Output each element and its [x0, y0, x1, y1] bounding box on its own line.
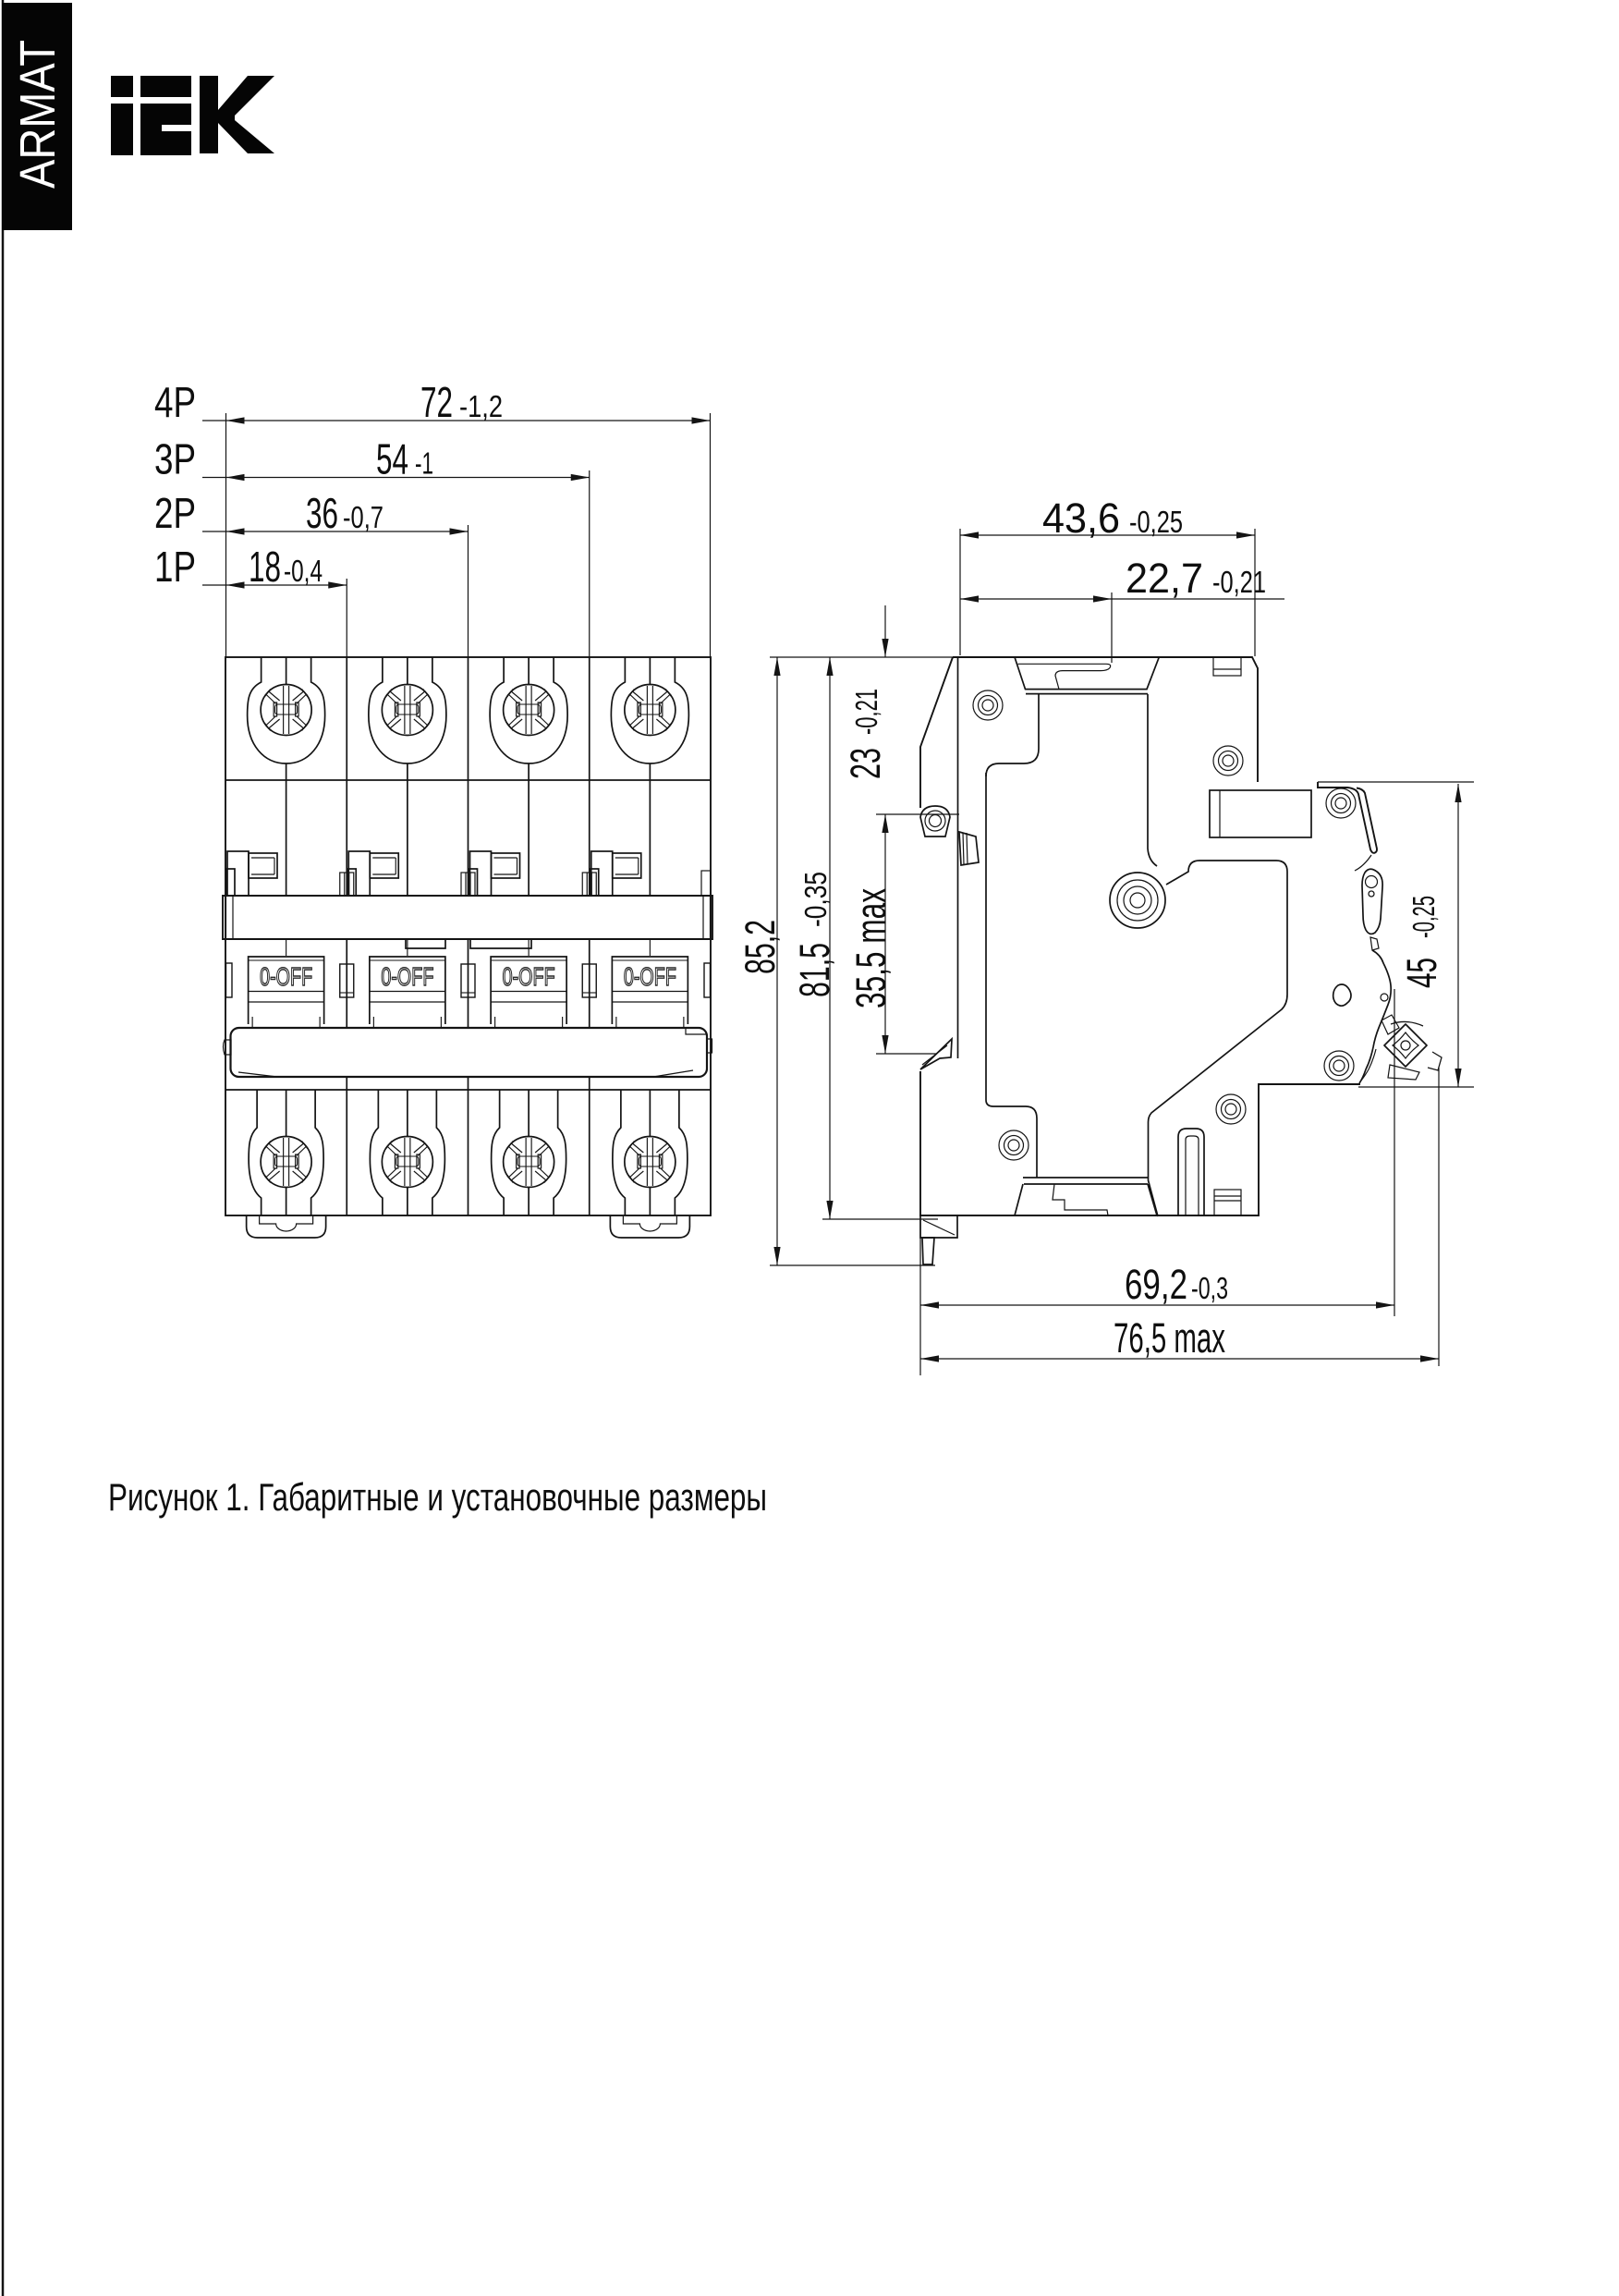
svg-text:2P: 2P: [154, 489, 196, 537]
svg-text:-0,25: -0,25: [1129, 505, 1183, 539]
svg-text:36: 36: [306, 489, 338, 537]
svg-text:45: 45: [1398, 958, 1445, 988]
svg-text:23: 23: [842, 748, 889, 779]
svg-text:-1,2: -1,2: [459, 389, 503, 423]
svg-text:3P: 3P: [154, 435, 196, 483]
svg-text:4P: 4P: [154, 378, 196, 426]
svg-text:-1: -1: [415, 446, 433, 481]
svg-text:54: 54: [376, 435, 408, 483]
svg-text:Рисунок 1. Габаритные и устано: Рисунок 1. Габаритные и установочные раз…: [108, 1475, 767, 1519]
svg-text:-0,35: -0,35: [798, 872, 833, 927]
svg-text:18: 18: [249, 543, 281, 591]
svg-text:85,2: 85,2: [736, 920, 784, 974]
svg-text:-0,25: -0,25: [1406, 896, 1441, 938]
svg-text:ARMAT: ARMAT: [10, 40, 66, 189]
svg-text:1P: 1P: [154, 543, 196, 591]
svg-text:-0,21: -0,21: [1212, 565, 1266, 599]
svg-text:76,5 max: 76,5 max: [1114, 1314, 1225, 1362]
svg-text:-0,7: -0,7: [343, 500, 383, 534]
svg-text:72: 72: [420, 378, 453, 426]
svg-text:69,2: 69,2: [1125, 1261, 1187, 1308]
svg-text:35,5 max: 35,5 max: [847, 888, 895, 1008]
svg-text:-0,3: -0,3: [1191, 1271, 1228, 1305]
svg-text:-0,4: -0,4: [284, 554, 323, 588]
svg-text:22,7: 22,7: [1126, 555, 1203, 602]
svg-text:81,5: 81,5: [791, 943, 838, 997]
svg-text:43,6: 43,6: [1042, 495, 1120, 542]
svg-text:-0,21: -0,21: [849, 689, 883, 735]
